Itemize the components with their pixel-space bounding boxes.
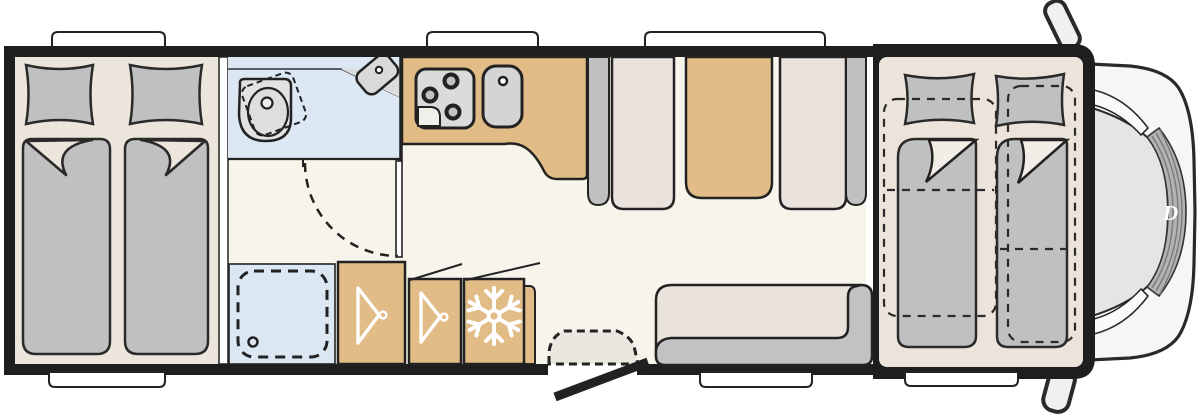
svg-text:D: D [1162, 201, 1178, 225]
